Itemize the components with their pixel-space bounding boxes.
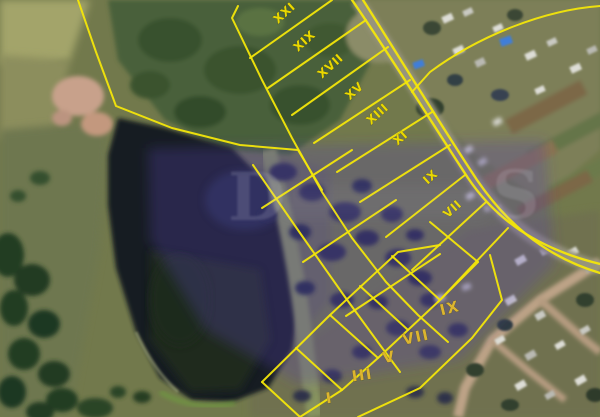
map-canvas: XXIXIXXVIIXVXIIIXIIXVIIIXVIIVIIII [0, 0, 600, 417]
parcel-label-block-iii: III [351, 365, 375, 386]
satellite-map: XXIXIXXVIIXVXIIIXIIXVIIIXVIIVIIII D S [0, 0, 600, 417]
